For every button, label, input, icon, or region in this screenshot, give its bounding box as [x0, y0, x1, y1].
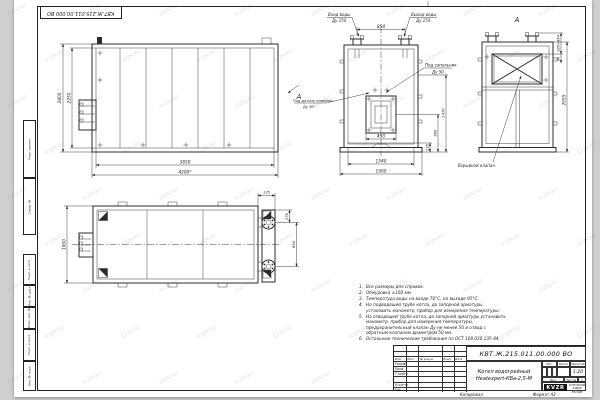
- note-1: 1.Все размеры для справок.: [358, 284, 508, 289]
- view-a: А 185×954 90 2: [458, 16, 569, 168]
- doc-number: КВТ.Ж.215.011.00.000 ВО: [466, 346, 586, 361]
- rear-pipes: [485, 33, 539, 43]
- kvzr-logo: KVZR: [544, 384, 567, 391]
- dim-plan-edge: 135: [263, 191, 271, 195]
- view-a-title: А: [514, 16, 520, 24]
- note-3: 3.Температура воды на входе 70°С, на вых…: [358, 296, 508, 301]
- dim-rear-height: 2055: [562, 94, 568, 105]
- burner-bracket: [79, 100, 96, 130]
- dim-valve-offset: 90: [557, 56, 561, 61]
- dim-front-width-inner: 3850: [180, 160, 191, 166]
- margin-box-inv-dubl: Инв. № дубл.: [23, 285, 36, 307]
- label-water-outlet-dn: Ду 150: [415, 18, 431, 23]
- dim-face-right-mid: 600: [434, 129, 438, 137]
- top-stamp-box: КВТ.Ж.215.011.00.000 ВО: [40, 6, 122, 19]
- plan-view: 1900 135 276 854: [62, 191, 300, 288]
- col-izm: Изм.: [395, 357, 402, 361]
- dim-plan-depth: 1900: [62, 239, 68, 250]
- drawing-canvas: 2400 2250 3850 4200* А: [0, 0, 600, 400]
- row-developed: Разраб.: [395, 362, 408, 366]
- dim-burner-width: 450: [377, 134, 385, 140]
- margin-box-inv-podl: Инв. № подл.: [23, 361, 36, 391]
- top-stamp-number: КВТ.Ж.215.011.00.000 ВО: [47, 10, 114, 16]
- label-explosion-valve: Взрывной клапан: [458, 163, 495, 168]
- dim-plan-pipe-offset: 276: [285, 212, 289, 220]
- explosion-valve-panel: [492, 54, 542, 84]
- dim-total-width: 1900: [376, 169, 387, 175]
- label-flame-sensor-dn: Ду 50: [302, 105, 314, 109]
- dim-plan-pipes-span: 854: [292, 240, 296, 248]
- copied-label: Копировал: [460, 392, 483, 397]
- row-tcontrol: Т.контр.: [395, 372, 409, 376]
- col-sign: Подп.: [443, 357, 451, 361]
- col-list: Лист: [407, 357, 414, 361]
- title-block: Изм. Лист № докум. Подп. Дата Разраб. Пр…: [393, 345, 586, 391]
- margin-box-vzam-inv: Взам. инв. №: [23, 307, 36, 329]
- label-water-outlet: Выход воды: [411, 12, 436, 17]
- water-outlet-pipe: [398, 36, 412, 59]
- dim-face-right-small: 135: [426, 143, 430, 151]
- row-ncontrol: Н.контр.: [395, 383, 409, 387]
- dim-front-height-outer: 2400: [57, 92, 63, 103]
- margin-box-sprav: Справ. №: [23, 178, 36, 235]
- format-label: Формат А2: [533, 392, 556, 397]
- water-inlet-pipe: [350, 36, 364, 59]
- label-igniter: Под запальник: [425, 63, 457, 68]
- face-view: 854 450 1470 600 135 1540 1900 Вход воды…: [293, 12, 457, 176]
- dim-front-width-outer: 4200*: [178, 170, 192, 176]
- company-cell: KVZR КОТЕЛЬНЫЙ ЗАВОД РОССИИ: [542, 382, 586, 391]
- mass-value: [557, 367, 570, 377]
- row-checked: Пров.: [395, 367, 404, 371]
- company-name: КОТЕЛЬНЫЙ ЗАВОД РОССИИ: [568, 384, 586, 394]
- dim-face-right-total: 1470: [442, 108, 446, 118]
- dim-pipes-span: 854: [377, 24, 385, 30]
- dim-base-width: 1540: [376, 159, 387, 165]
- margin-box-perv-primen: Перв. примен.: [23, 120, 36, 178]
- section-arrow: [288, 85, 299, 93]
- drawing-sheet: КВТ.Ж.215.011.00.000 ВО Перв. примен. Сп…: [0, 0, 600, 400]
- note-6: 6.Остальные технические требования по ОС…: [358, 336, 508, 341]
- product-name: Котел водогрейныйHeatexpert-КВа-2,5-М: [466, 361, 542, 391]
- col-date: Дата: [455, 357, 462, 361]
- dim-valve-size: 185×954: [557, 34, 561, 51]
- technical-notes: 1.Все размеры для справок. 2.Обмуровка ±…: [358, 284, 508, 342]
- note-5: 5.На отводящей трубе котла, до запорной …: [358, 314, 508, 336]
- scale-value: 1:20: [570, 367, 586, 377]
- burner-bracket-plan: [79, 233, 93, 257]
- front-view: 2400 2250 3850 4200* А: [57, 37, 302, 178]
- label-water-inlet: Вход воды: [328, 12, 350, 17]
- note-2: 2.Обмуровка ±100 мм.: [358, 290, 508, 295]
- chimney-stub: [97, 37, 102, 44]
- label-igniter-dn: Ду 50: [431, 70, 444, 75]
- dim-front-height-inner: 2250: [67, 92, 73, 103]
- col-doc: № докум.: [420, 357, 434, 361]
- label-water-inlet-dn: Ду 150: [331, 18, 347, 23]
- pipe-flanges-plan: [258, 210, 275, 282]
- note-4: 4.На подводящей трубе котла, до запорной…: [358, 302, 508, 313]
- margin-box-podp-data-1: Подп. и дата: [23, 254, 36, 285]
- row-approved: Утв.: [395, 388, 402, 392]
- margin-box-podp-data-2: Подп. и дата: [23, 329, 36, 361]
- label-flame-sensor: Под датчик пламени: [293, 99, 333, 103]
